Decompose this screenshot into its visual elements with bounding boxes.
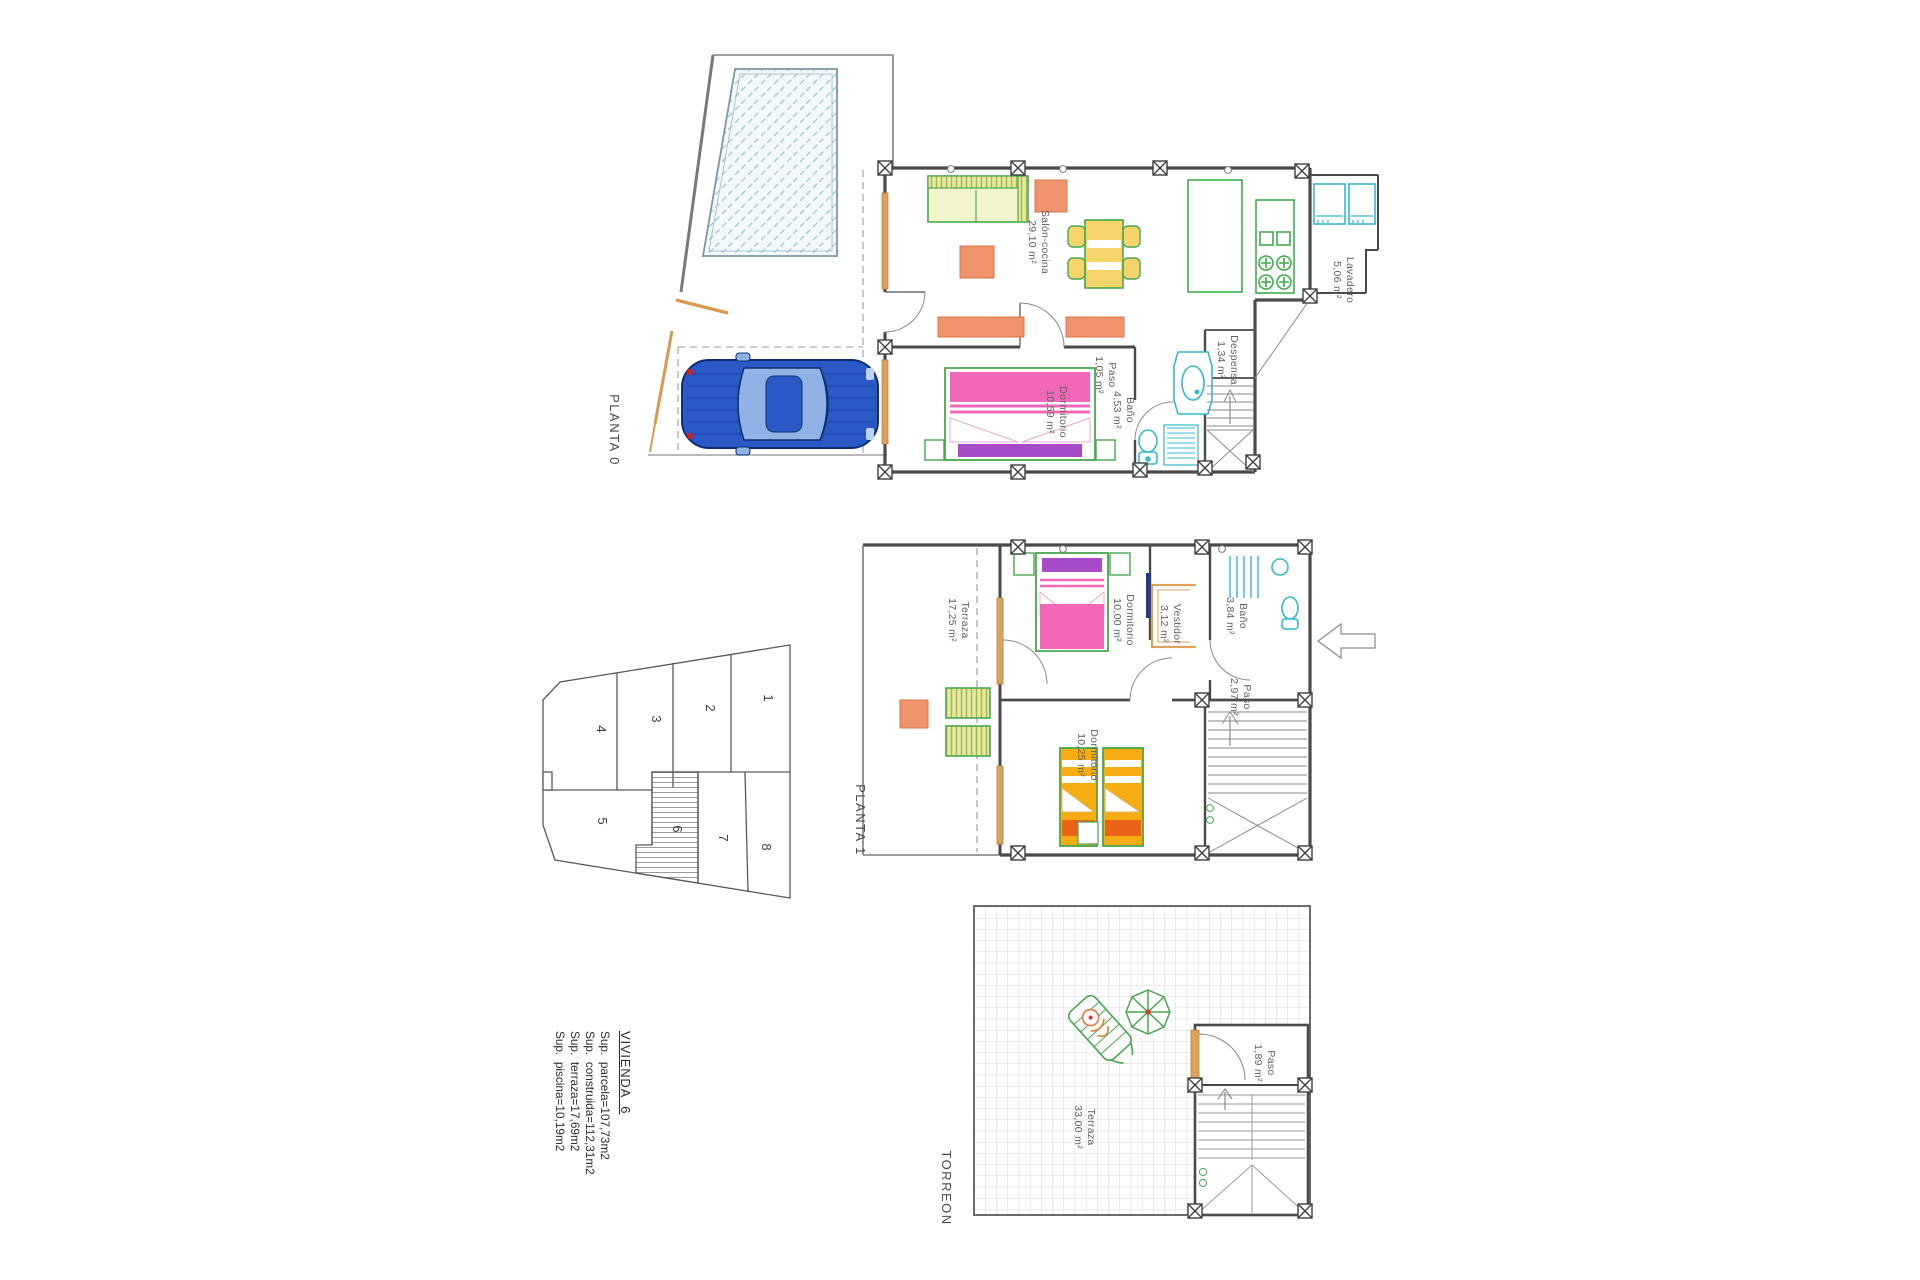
entrance-arrow bbox=[1318, 624, 1375, 658]
room-label-paso1: Paso2,97 m² bbox=[1227, 649, 1253, 745]
summary-parcela: Sup. parcela=107,73m2 bbox=[597, 1031, 612, 1175]
room-label-dormitorio2: Dormitorio10,25 m² bbox=[1074, 707, 1100, 803]
room-label-vestidor: Vestidor3,12 m² bbox=[1157, 576, 1183, 672]
lot-number-1: 1 bbox=[761, 687, 777, 709]
lot-number-4: 4 bbox=[594, 718, 610, 740]
lot-number-6: 6 bbox=[670, 818, 686, 840]
room-label-bano0: Baño4,53 m² bbox=[1110, 362, 1136, 458]
summary-terraza: Sup. terraza=17,69m2 bbox=[567, 1031, 582, 1175]
site-lot-plan bbox=[530, 630, 810, 920]
room-label-paso-torreon: Paso1,89 m² bbox=[1251, 1015, 1277, 1111]
swimming-pool bbox=[703, 69, 837, 256]
planta0-title: PLANTA 0 bbox=[606, 382, 624, 478]
vivienda-summary: VIVIENDA 6 Sup. parcela=107,73m2 Sup. co… bbox=[552, 1031, 633, 1175]
rug-square bbox=[960, 246, 994, 278]
lot-number-3: 3 bbox=[649, 708, 665, 730]
dining-table-and-chairs bbox=[1068, 220, 1140, 288]
room-label-dormitorio1: Dormitorio10,00 m² bbox=[1110, 572, 1136, 668]
lot-number-8: 8 bbox=[759, 836, 775, 858]
room-label-salon: Salón-cocina29,10 m² bbox=[1025, 194, 1051, 290]
room-label-despensa: Despensa1,34 m² bbox=[1214, 312, 1240, 408]
room-label-dormitorio0: Dormitorio10,59 m² bbox=[1043, 364, 1069, 460]
sofa bbox=[928, 176, 1028, 222]
terrace-table bbox=[900, 700, 928, 728]
stairwell-planta1 bbox=[1207, 712, 1307, 853]
bathtub bbox=[1174, 352, 1212, 414]
twin-beds bbox=[1060, 748, 1143, 846]
room-label-lavadero: Lavadero5,06 m² bbox=[1330, 232, 1356, 328]
room-label-terraza-torreon: Terraza33,00 m² bbox=[1071, 1079, 1097, 1175]
room-label-terraza1: Terraza17,25 m² bbox=[945, 572, 971, 668]
washer-dryer-units bbox=[1314, 184, 1375, 224]
lot-number-2: 2 bbox=[703, 697, 719, 719]
lot-number-7: 7 bbox=[716, 827, 732, 849]
lot-number-5: 5 bbox=[595, 810, 611, 832]
parasol-umbrella bbox=[1126, 990, 1170, 1034]
vivienda-heading: VIVIENDA 6 bbox=[618, 1031, 633, 1175]
shower-mat bbox=[1164, 425, 1198, 465]
summary-piscina: Sup. piscina=10,19m2 bbox=[552, 1031, 567, 1175]
planta1-title: PLANTA 1 bbox=[852, 772, 870, 868]
toilet bbox=[1139, 430, 1157, 464]
double-bed bbox=[925, 368, 1115, 460]
summary-construida: Sup. construida=112,31m2 bbox=[582, 1031, 597, 1175]
floorplan-sheet: PLANTA 0 PLANTA 1 TORREON Salón-cocina29… bbox=[0, 0, 1920, 1280]
kitchen-counter bbox=[1188, 180, 1294, 293]
car-top-view bbox=[682, 353, 878, 455]
torreon-title: TORREON bbox=[938, 1140, 956, 1236]
terrace-loungers bbox=[946, 688, 990, 756]
